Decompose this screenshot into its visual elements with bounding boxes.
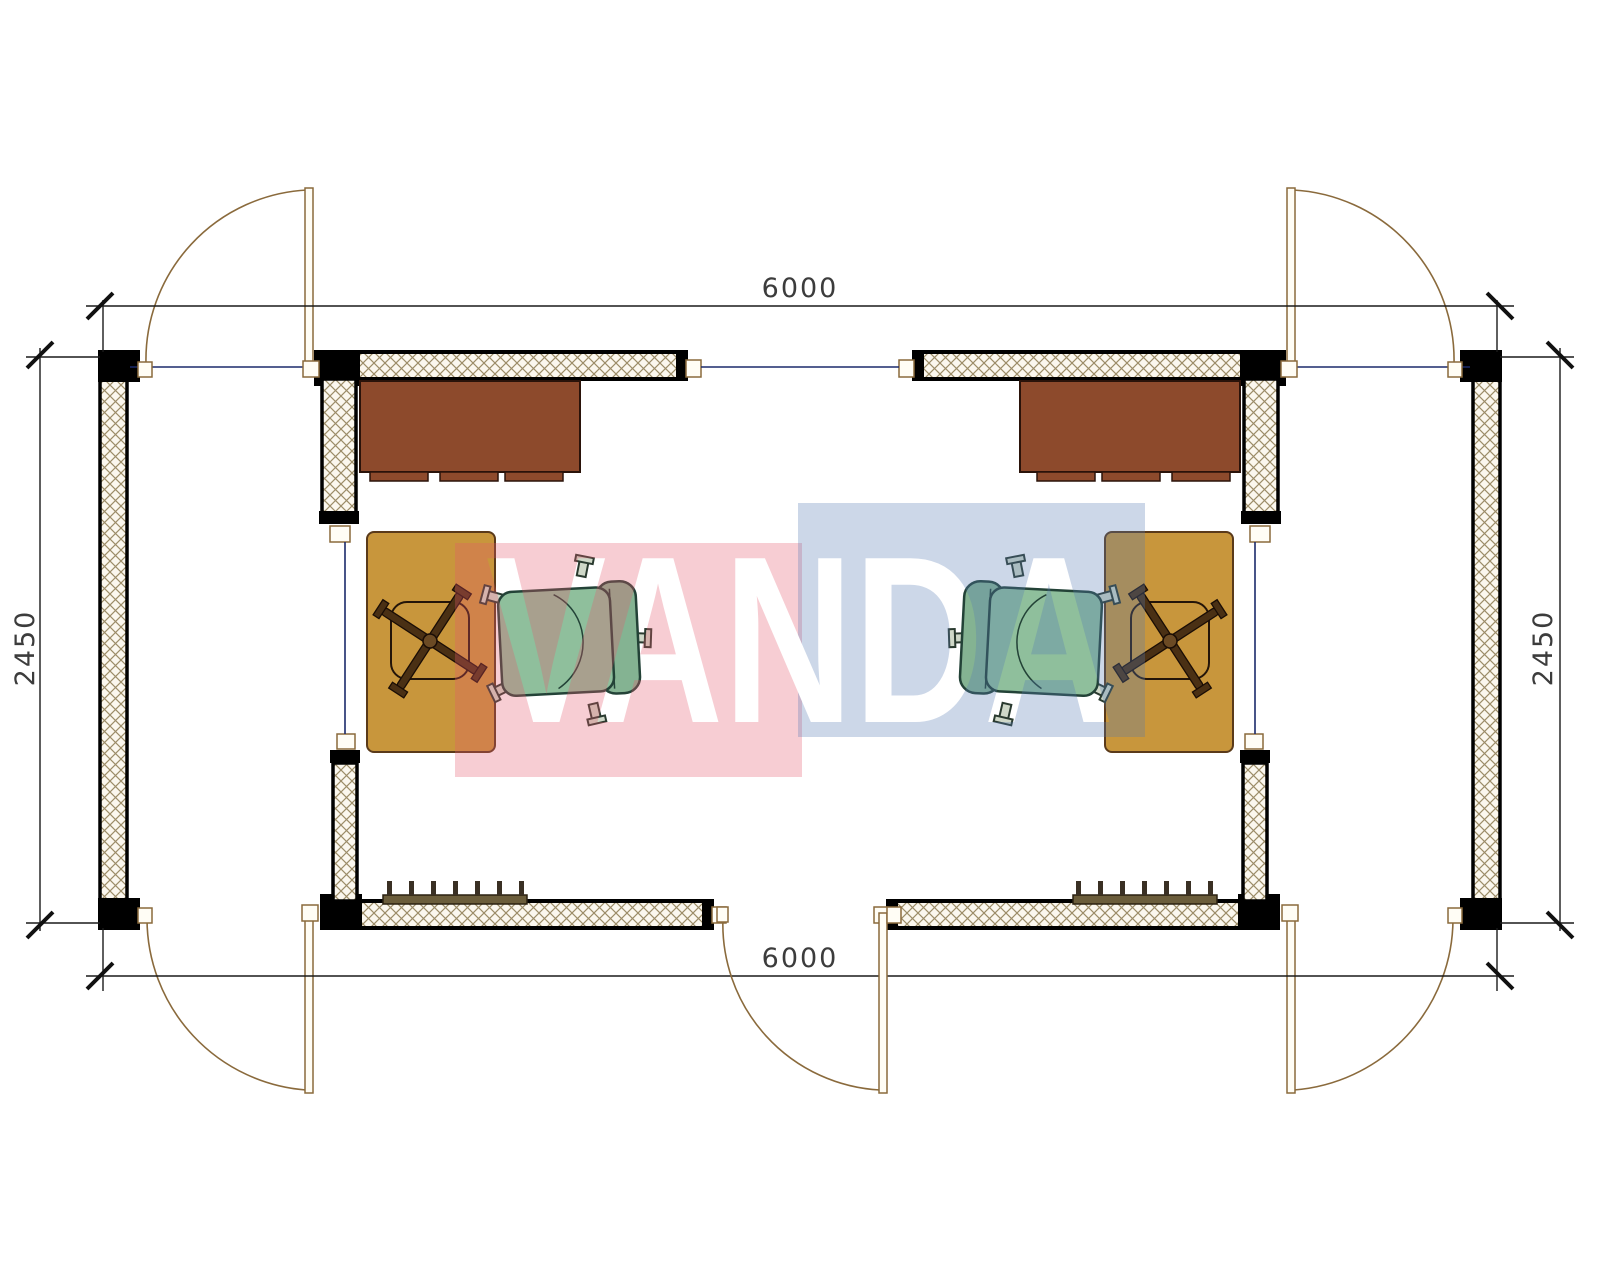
watermark-blue-rect: [798, 503, 1145, 737]
watermark-overlay: [455, 503, 1145, 777]
floor-plan-drawing: VANDA: [0, 0, 1600, 1280]
watermark-pink-rect: [455, 543, 802, 777]
dim-left-label: 2450: [10, 610, 41, 687]
dim-bottom-label: 6000: [762, 943, 839, 974]
dim-top-label: 6000: [762, 273, 839, 304]
dim-right-label: 2450: [1528, 610, 1559, 687]
floor-plan-page: VANDA: [0, 0, 1600, 1280]
